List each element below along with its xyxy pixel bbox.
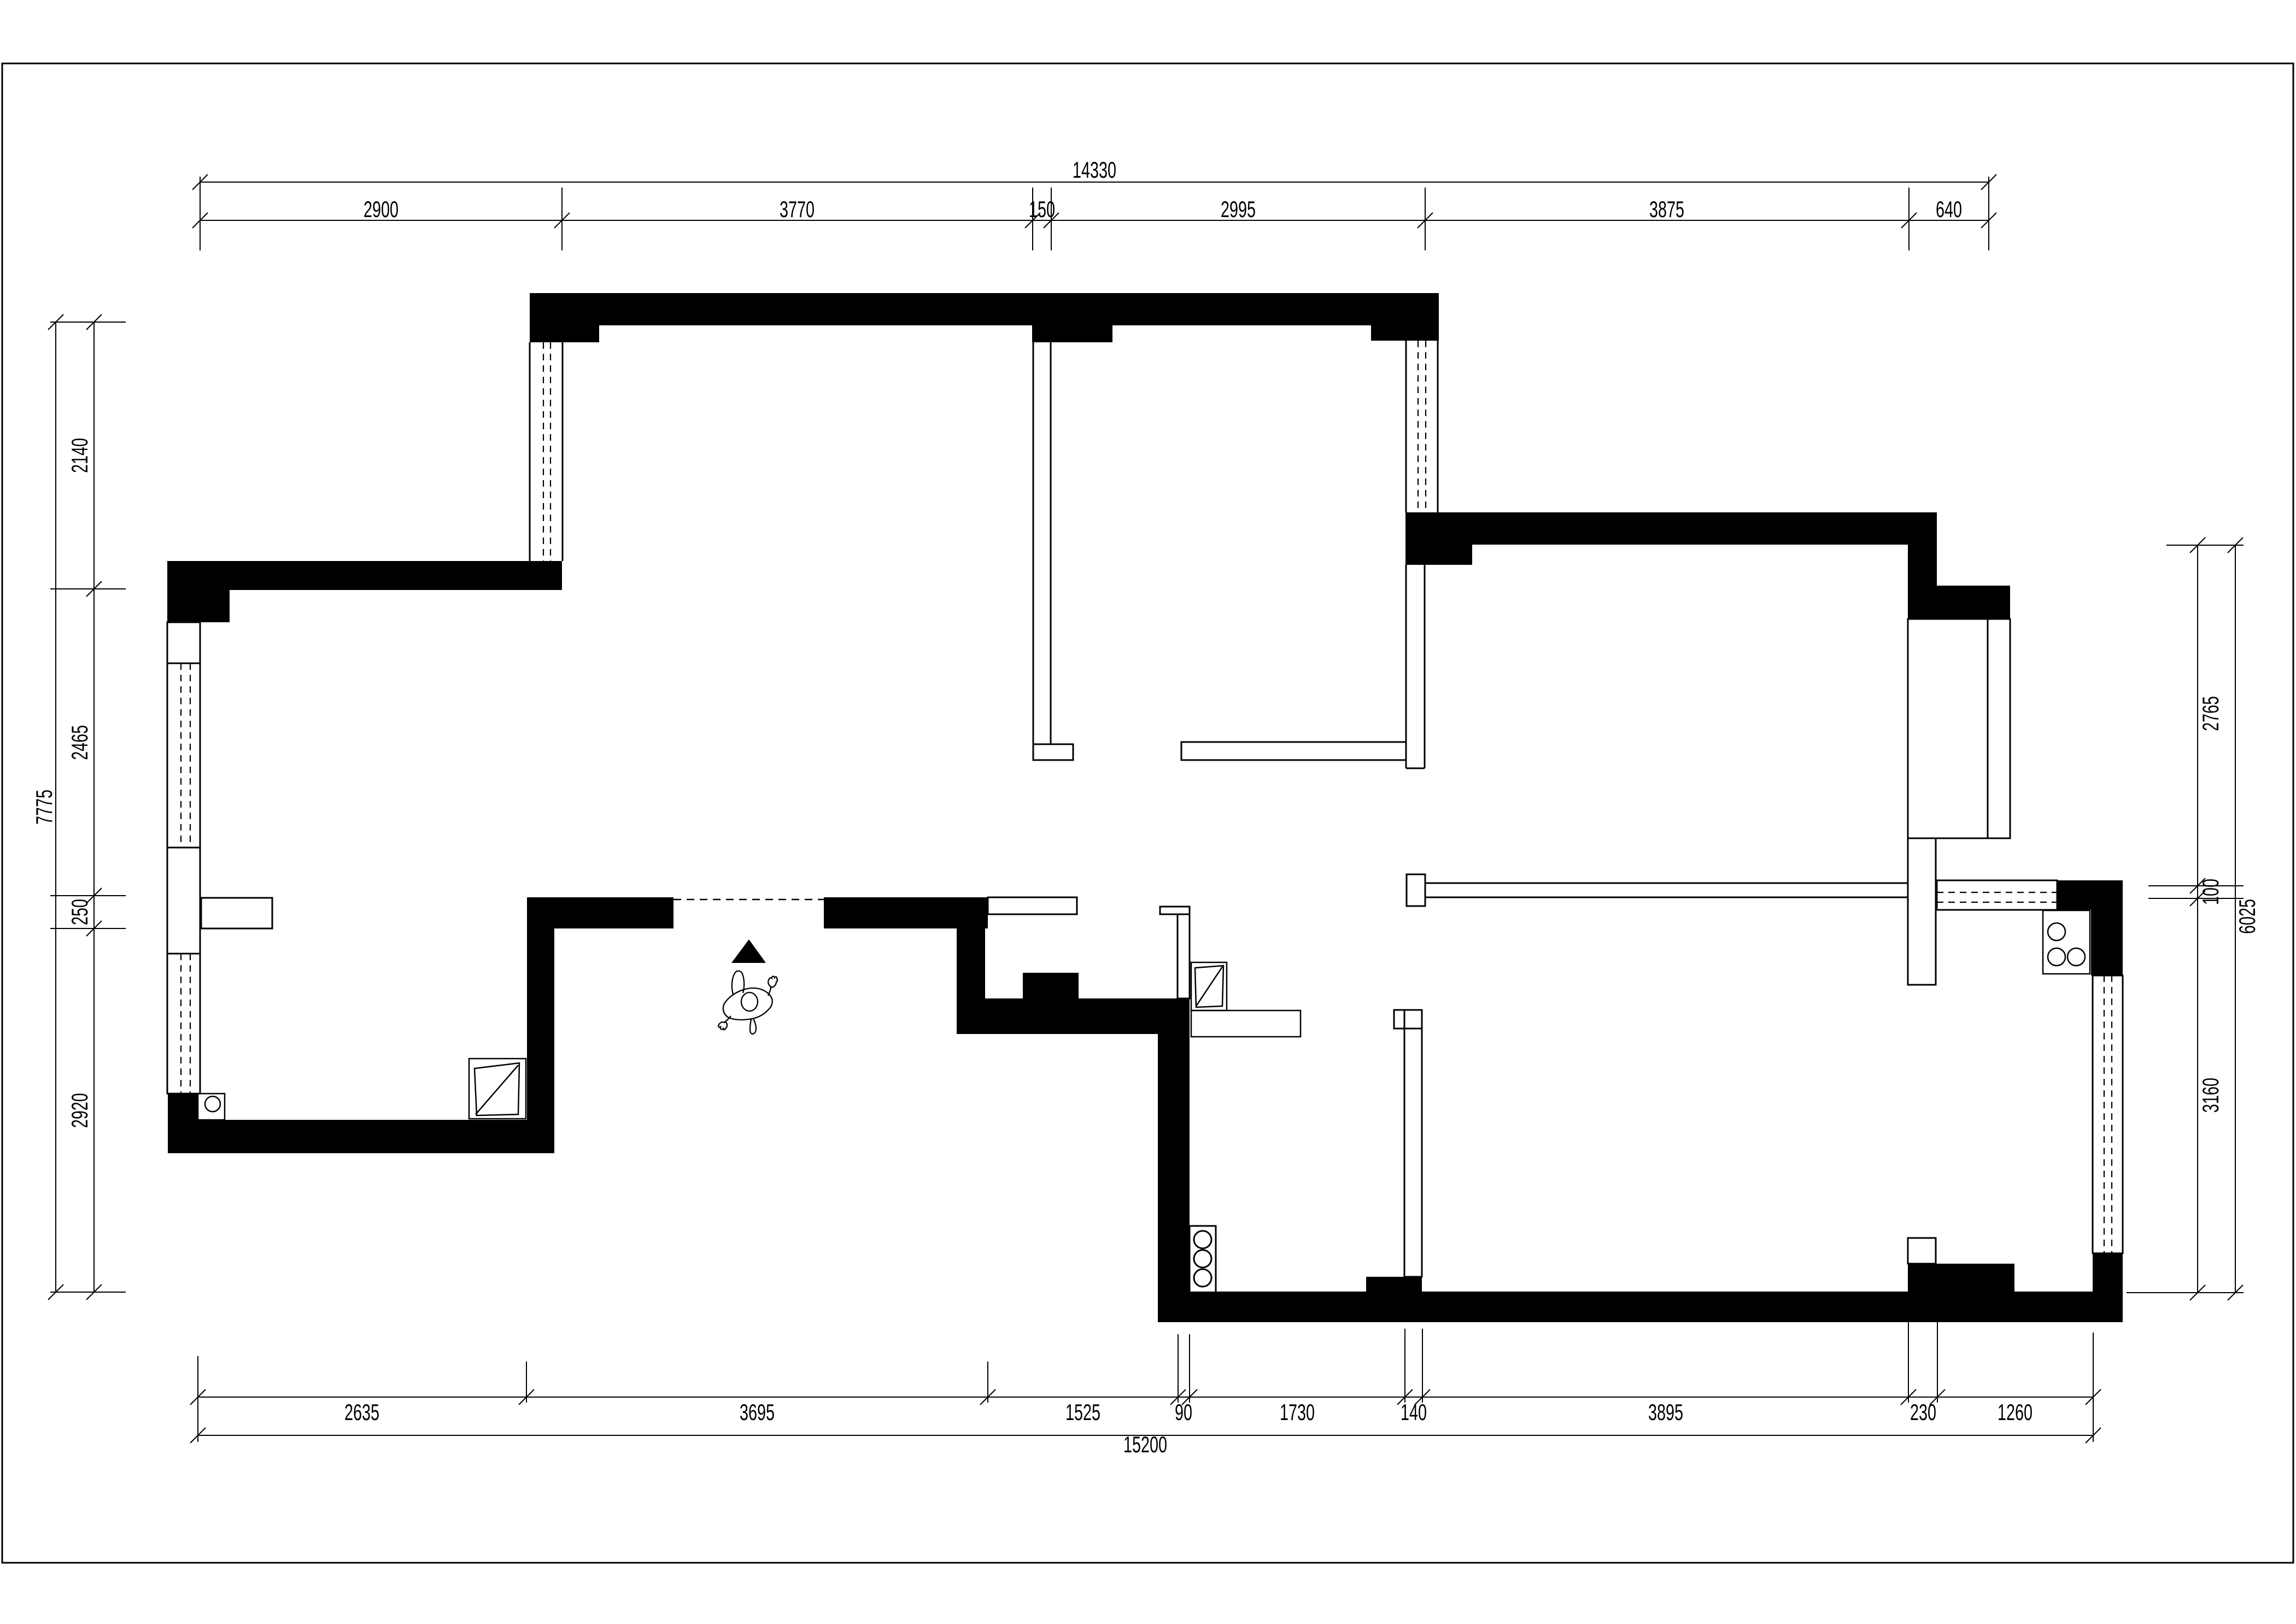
svg-text:2995: 2995 [1221,196,1256,222]
svg-text:2920: 2920 [67,1093,92,1128]
svg-text:3770: 3770 [780,196,815,222]
svg-text:3695: 3695 [740,1399,775,1425]
svg-text:250: 250 [67,899,92,925]
svg-text:2140: 2140 [67,438,92,473]
svg-text:230: 230 [1910,1399,1936,1425]
svg-text:3875: 3875 [1649,196,1684,222]
svg-text:15200: 15200 [1123,1432,1167,1457]
svg-text:150: 150 [1029,196,1055,222]
svg-text:3160: 3160 [2198,1078,2223,1113]
svg-text:3895: 3895 [1648,1399,1683,1425]
svg-text:2900: 2900 [364,196,399,222]
svg-text:2465: 2465 [67,725,92,760]
svg-text:100: 100 [2198,879,2223,905]
svg-text:14330: 14330 [1073,157,1116,183]
svg-text:140: 140 [1401,1399,1427,1425]
svg-text:640: 640 [1936,196,1962,222]
svg-text:90: 90 [1175,1399,1192,1425]
svg-text:7775: 7775 [31,790,57,825]
svg-text:2635: 2635 [344,1399,379,1425]
svg-text:1730: 1730 [1280,1399,1315,1425]
svg-text:1260: 1260 [1998,1399,2033,1425]
svg-text:1525: 1525 [1065,1399,1100,1425]
svg-text:6025: 6025 [2234,899,2260,934]
svg-text:2765: 2765 [2198,696,2223,731]
